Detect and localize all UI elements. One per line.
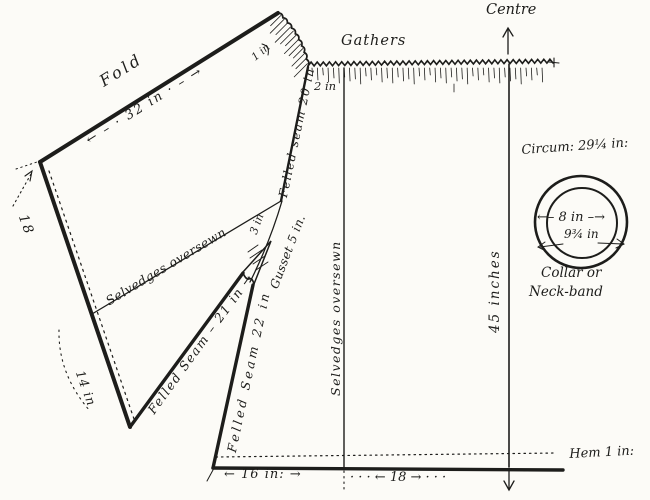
- centre-down-arrow: [504, 471, 514, 490]
- corner-dotted-extension: [16, 162, 37, 169]
- collar-8in-label: ←– 8 in –→: [537, 211, 605, 224]
- centre-label: Centre: [486, 3, 536, 18]
- bottom-18in-dimension-label: · · · ← 18 → · · ·: [350, 471, 446, 484]
- collar-975-label: 9¾ in: [564, 228, 599, 240]
- dim-18-dotted-arrow: [13, 171, 32, 206]
- length-45-label: 45 inches: [489, 249, 503, 333]
- hem-dotted-line: [216, 453, 556, 457]
- gap-2in-label: 2 in: [314, 81, 336, 93]
- body-selvedge-label: Selvedges oversewn: [330, 240, 343, 396]
- smock-pattern-diagram: Fold ← – · 32 in · – → 18 14 in Selvedge…: [0, 0, 650, 500]
- collar-caption-line1: Collar or: [541, 267, 601, 281]
- centre-up-arrow: [503, 28, 513, 54]
- bottom-16in-dimension-label: ← 16 in: →: [224, 468, 302, 481]
- hem-label: Hem 1 in:: [569, 445, 634, 461]
- collar-caption-line2: Neck-band: [529, 286, 603, 300]
- gathers-label: Gathers: [341, 34, 406, 49]
- bottom-corner-tick: [207, 470, 213, 481]
